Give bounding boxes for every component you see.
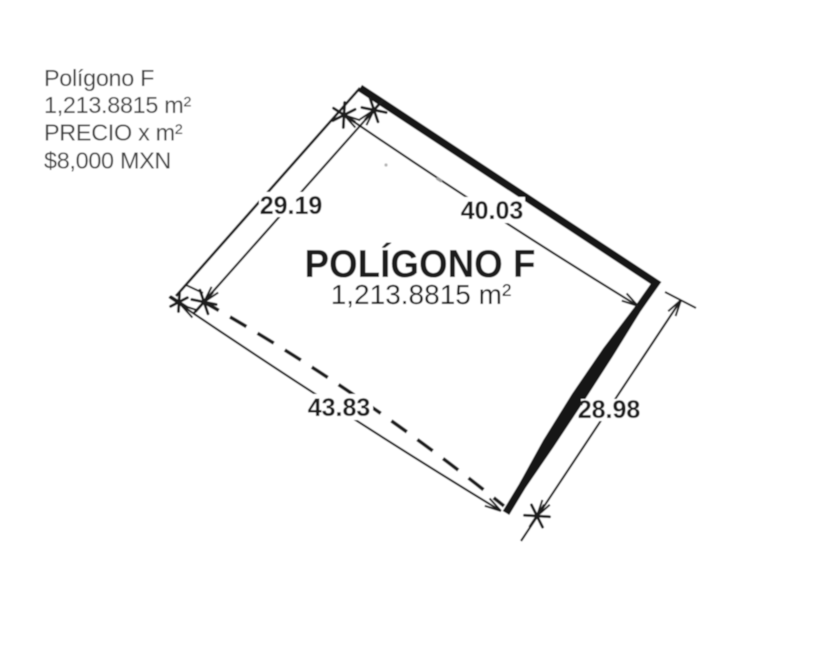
svg-text:Polígono F: Polígono F — [44, 65, 154, 91]
svg-text:1,213.8815 m²: 1,213.8815 m² — [44, 92, 191, 118]
svg-text:40.03: 40.03 — [461, 197, 524, 225]
svg-text:1,213.8815 m²: 1,213.8815 m² — [331, 279, 512, 310]
svg-text:28.98: 28.98 — [578, 396, 641, 424]
svg-text:$8,000 MXN: $8,000 MXN — [44, 148, 171, 174]
svg-text:PRECIO x m²: PRECIO x m² — [44, 120, 183, 146]
svg-text:43.83: 43.83 — [308, 394, 371, 422]
svg-text:29.19: 29.19 — [260, 192, 323, 220]
